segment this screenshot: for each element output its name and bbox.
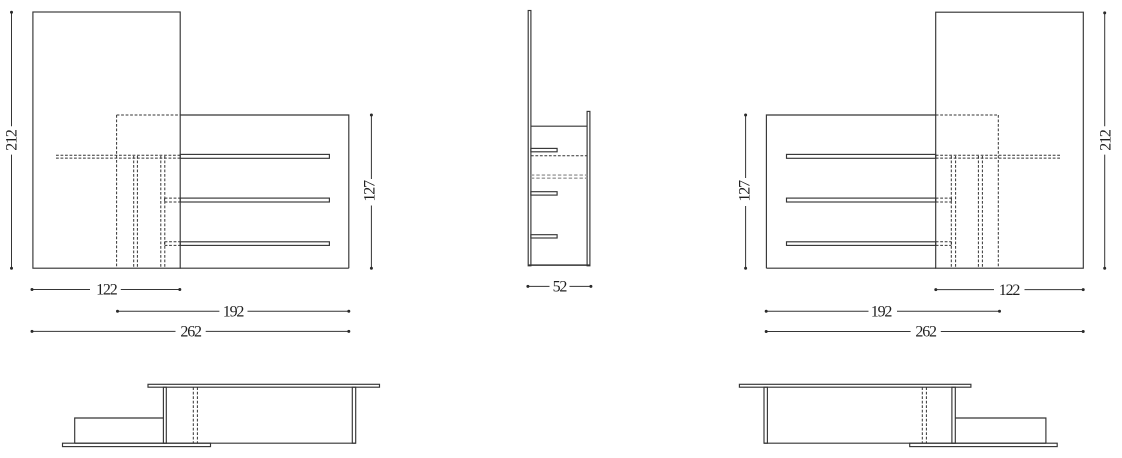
svg-text:122: 122: [96, 282, 118, 299]
svg-text:262: 262: [915, 324, 937, 341]
svg-text:192: 192: [223, 303, 245, 320]
svg-text:52: 52: [553, 279, 568, 296]
svg-text:212: 212: [1098, 129, 1115, 151]
svg-text:127: 127: [362, 180, 379, 202]
svg-text:192: 192: [871, 303, 893, 320]
svg-text:212: 212: [4, 129, 21, 151]
svg-text:262: 262: [180, 324, 202, 341]
svg-text:127: 127: [737, 180, 754, 202]
svg-text:122: 122: [999, 282, 1021, 299]
